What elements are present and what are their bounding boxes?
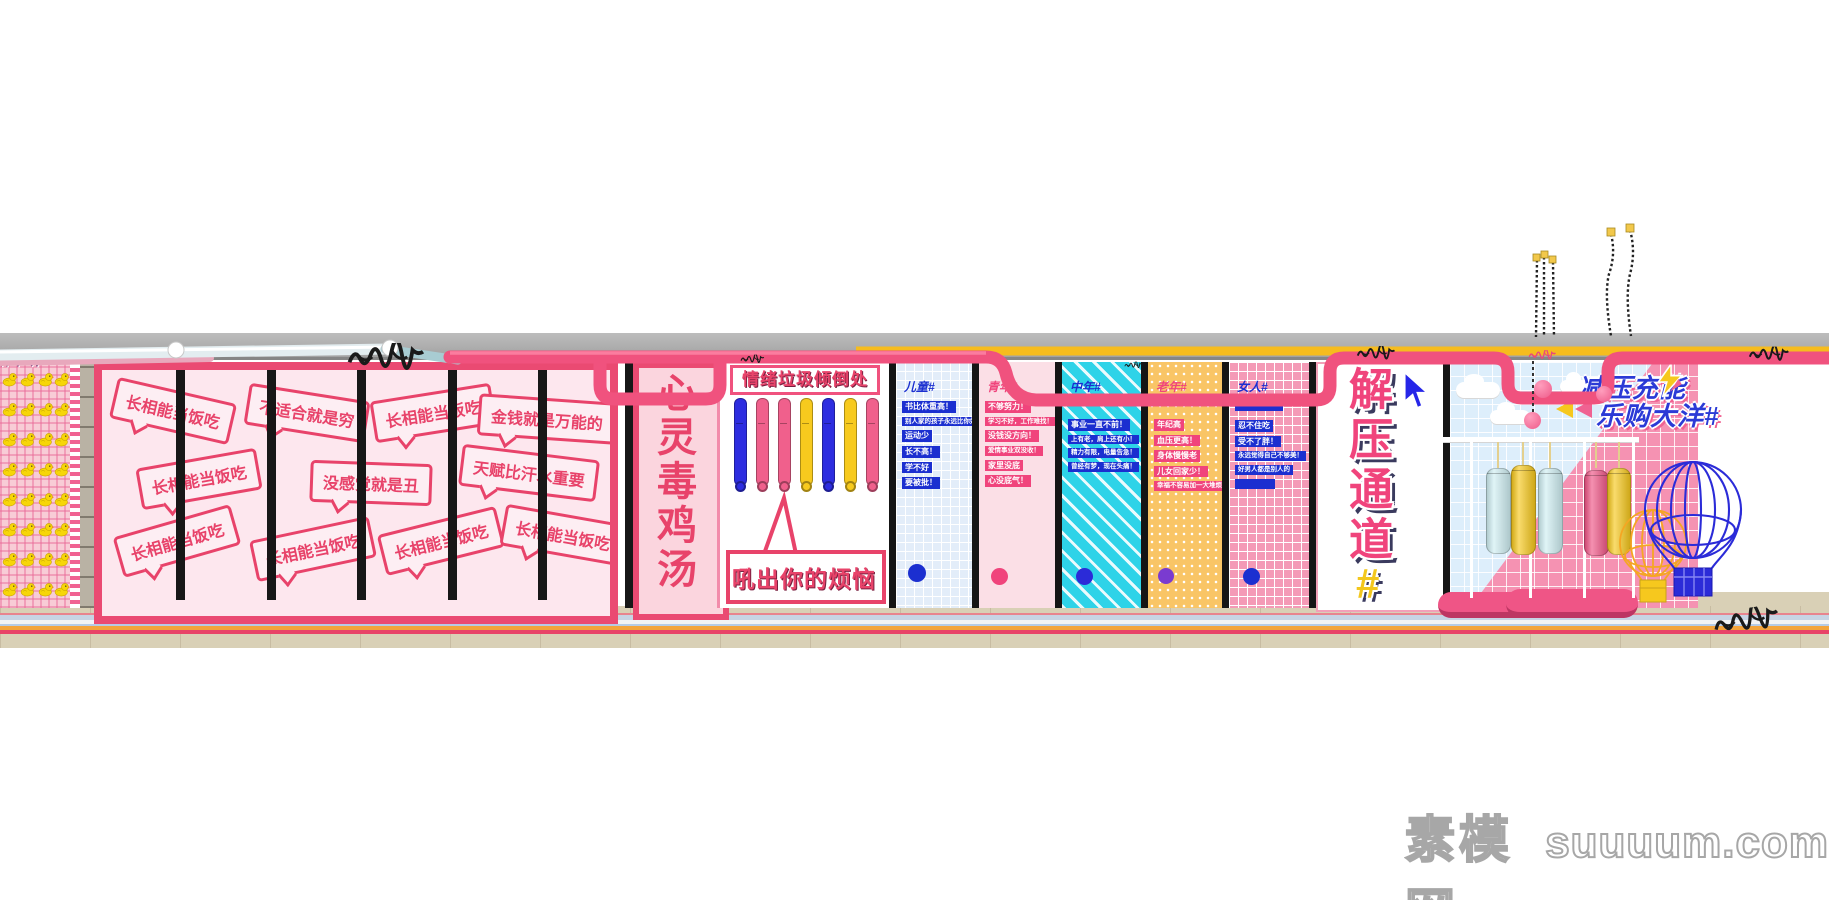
floor-dot bbox=[1243, 568, 1260, 585]
toxic-quotes-wall: 长相能当饭吃 不适合就是穷 长相能当饭吃 金钱就是万能的 长相能当饭吃 没感觉就… bbox=[94, 362, 618, 624]
soup-panel: 心灵毒鸡汤 bbox=[633, 362, 729, 620]
graffiti-mark bbox=[740, 350, 766, 368]
arrow-left-icon bbox=[1556, 400, 1573, 418]
panel-kids-header: 儿童# bbox=[904, 378, 972, 395]
frame-bar bbox=[625, 362, 633, 608]
punch-cylinder bbox=[1486, 468, 1511, 554]
emotion-title: 情绪垃圾倾倒处 bbox=[730, 365, 880, 395]
complaint-line: 心没底气！ bbox=[985, 475, 1031, 487]
complaint-line: 忍不住吃 bbox=[1235, 420, 1273, 432]
graffiti-mark bbox=[1748, 340, 1792, 368]
speech-bubble: 长相能当饭吃 bbox=[109, 377, 237, 445]
frame-bar bbox=[267, 370, 276, 600]
complaint-line: 受不了胖！ bbox=[1235, 436, 1281, 448]
panel-youth: 青年# 不够努力！ 学习不好，工作难找！ 没钱没方向！ 爱情事业双没收！ 家里没… bbox=[979, 362, 1055, 608]
arrow-left-icon bbox=[1575, 400, 1592, 418]
complaint-line: 家里没底 bbox=[985, 460, 1023, 472]
panel-kids: 儿童# 书比体重高！ 别人家的孩子永远比你好！ 运动少 长不高！ 学不好 要被批… bbox=[896, 362, 972, 608]
complaint-line: 运动少 bbox=[902, 430, 932, 442]
yellow-basket bbox=[1640, 580, 1666, 602]
speech-bubble: 长相能当饭吃 bbox=[377, 506, 506, 576]
frame-bar bbox=[538, 370, 547, 600]
frame-bar bbox=[1309, 362, 1316, 608]
complaint-line: 不够努力！ bbox=[985, 401, 1031, 413]
floor-dot bbox=[991, 568, 1008, 585]
hanging-bat bbox=[778, 398, 791, 486]
hanging-bat bbox=[734, 398, 747, 486]
complaint-line: 别人家的孩子永远比你好！ bbox=[902, 417, 972, 427]
concrete-column bbox=[80, 362, 94, 608]
emotion-dump-panel: 情绪垃圾倾倒处 吼出你的烦恼 bbox=[717, 362, 895, 608]
rail-post bbox=[1470, 440, 1473, 598]
channel-hash: # bbox=[1356, 560, 1379, 608]
graffiti-mark bbox=[1528, 346, 1558, 364]
frame-bar bbox=[1141, 362, 1148, 608]
panel-midlife: 中年# 事业一直不前！ 上有老，肩上还有小！ 精力有限，电量告急！ 曾经有梦，现… bbox=[1062, 362, 1141, 608]
watermark: 素模网 suuuum.com bbox=[1405, 800, 1829, 900]
frame-bar bbox=[1443, 362, 1450, 608]
cloud bbox=[1456, 382, 1500, 398]
frame-bar bbox=[972, 362, 979, 608]
pink-ball bbox=[1596, 386, 1612, 402]
speech-bubble: 金钱就是万能的 bbox=[477, 393, 618, 445]
striped-edge bbox=[70, 362, 80, 608]
frame-bar bbox=[889, 362, 896, 608]
complaint-line: 事业一直不前！ bbox=[1068, 419, 1130, 431]
recharge-line2: 乐购大洋# bbox=[1596, 396, 1719, 433]
panel-women: 女人# 忍不住吃 受不了胖！ 永远觉得自己不够美！ 好男人都是别人的 bbox=[1229, 362, 1309, 608]
complaint-line: 上有老，肩上还有小！ bbox=[1068, 435, 1139, 445]
complaint-line: 爱情事业双没收！ bbox=[985, 446, 1043, 456]
hanging-bat bbox=[822, 398, 835, 486]
pink-ball bbox=[1534, 380, 1552, 398]
speech-bubble: 长相能当饭吃 bbox=[499, 504, 618, 567]
left-graffiti-text: 听不听 bbox=[0, 350, 41, 370]
floor-stripe bbox=[0, 630, 1829, 634]
complaint-line: 没钱没方向！ bbox=[985, 430, 1039, 442]
speech-bubble: 天赋比汗水重要 bbox=[458, 444, 600, 503]
soup-title: 心灵毒鸡汤 bbox=[653, 372, 693, 592]
frame-bar bbox=[1055, 362, 1062, 608]
hanging-chains bbox=[1520, 220, 1680, 340]
duck-wall bbox=[0, 362, 70, 608]
channel-title: 解压通道 bbox=[1344, 366, 1388, 566]
floor-dot bbox=[908, 564, 926, 582]
hang-string bbox=[1497, 442, 1499, 468]
complaint-line: 好男人都是别人的 bbox=[1235, 465, 1293, 475]
complaint-line: 书比体重高！ bbox=[902, 401, 956, 413]
punch-cylinder bbox=[1538, 468, 1563, 554]
complaint-line: 要被批！ bbox=[902, 477, 940, 489]
complaint-line: 身体慢慢老 bbox=[1154, 450, 1200, 462]
hanging-bat bbox=[866, 398, 879, 486]
frame-bar bbox=[1222, 362, 1229, 608]
hang-string bbox=[1595, 442, 1597, 468]
hot-air-balloons bbox=[1598, 448, 1748, 613]
speech-bubble: 不适合就是穷 bbox=[243, 383, 370, 444]
complaint-line: 曾经有梦，现在头痛！ bbox=[1068, 462, 1139, 472]
hang-string bbox=[1549, 442, 1551, 468]
hidden-complaint-bar bbox=[1235, 401, 1283, 411]
complaint-line: 血压更高！ bbox=[1154, 435, 1200, 447]
complaint-line: 长不高！ bbox=[902, 446, 940, 458]
complaint-line: 永远觉得自己不够美！ bbox=[1235, 451, 1306, 461]
panel-women-header: 女人# bbox=[1237, 378, 1309, 395]
floor-dot bbox=[1076, 568, 1093, 585]
watermark-en: suuuum.com bbox=[1545, 818, 1829, 868]
complaint-line: 年纪高 bbox=[1154, 419, 1184, 431]
frame-bar bbox=[448, 370, 457, 600]
watermark-cn: 素模网 bbox=[1405, 800, 1541, 900]
hanging-bat bbox=[756, 398, 769, 486]
graffiti-mark bbox=[1124, 358, 1144, 372]
complaint-line: 学不好 bbox=[902, 462, 932, 474]
frame-bar bbox=[176, 370, 185, 600]
frame-bar bbox=[357, 370, 366, 600]
panel-midlife-header: 中年# bbox=[1070, 378, 1141, 395]
complaint-line: 幸福不容易加一大堆烦恼！ bbox=[1154, 481, 1222, 491]
decompress-channel-panel: 解压通道 # bbox=[1316, 362, 1447, 612]
graffiti-mark bbox=[346, 342, 430, 372]
pink-ball bbox=[1524, 412, 1541, 429]
hanging-bat bbox=[800, 398, 813, 486]
panel-senior-header: 老年# bbox=[1156, 378, 1222, 395]
speech-bubble: 没感觉就是丑 bbox=[309, 460, 432, 506]
complaint-line: 儿女回家少！ bbox=[1154, 466, 1208, 478]
scene: 听不听 长相能当饭吃 不适合就是穷 长相能当饭吃 金钱就是万能的 长相能当饭吃 … bbox=[0, 0, 1829, 900]
speech-bubble: 长相能当饭吃 bbox=[135, 448, 262, 511]
blue-basket bbox=[1674, 568, 1712, 596]
graffiti-mark bbox=[1356, 340, 1398, 366]
shout-text: 吼出你的烦恼 bbox=[728, 560, 880, 594]
panel-youth-header: 青年# bbox=[987, 378, 1055, 395]
floor-dot bbox=[1158, 568, 1174, 584]
hanging-bat bbox=[844, 398, 857, 486]
complaint-line: 精力有限，电量告急！ bbox=[1068, 448, 1139, 458]
panel-senior: 老年# 年纪高 血压更高！ 身体慢慢老 儿女回家少！ 幸福不容易加一大堆烦恼！ bbox=[1148, 362, 1222, 608]
complaint-line: 学习不好，工作难找！ bbox=[985, 417, 1055, 427]
punch-cylinder bbox=[1511, 465, 1536, 555]
rubber-ducks bbox=[0, 362, 70, 608]
hidden-complaint-bar bbox=[1235, 479, 1275, 489]
cursor-icon bbox=[1400, 370, 1434, 412]
lightning-icon bbox=[1656, 364, 1684, 398]
